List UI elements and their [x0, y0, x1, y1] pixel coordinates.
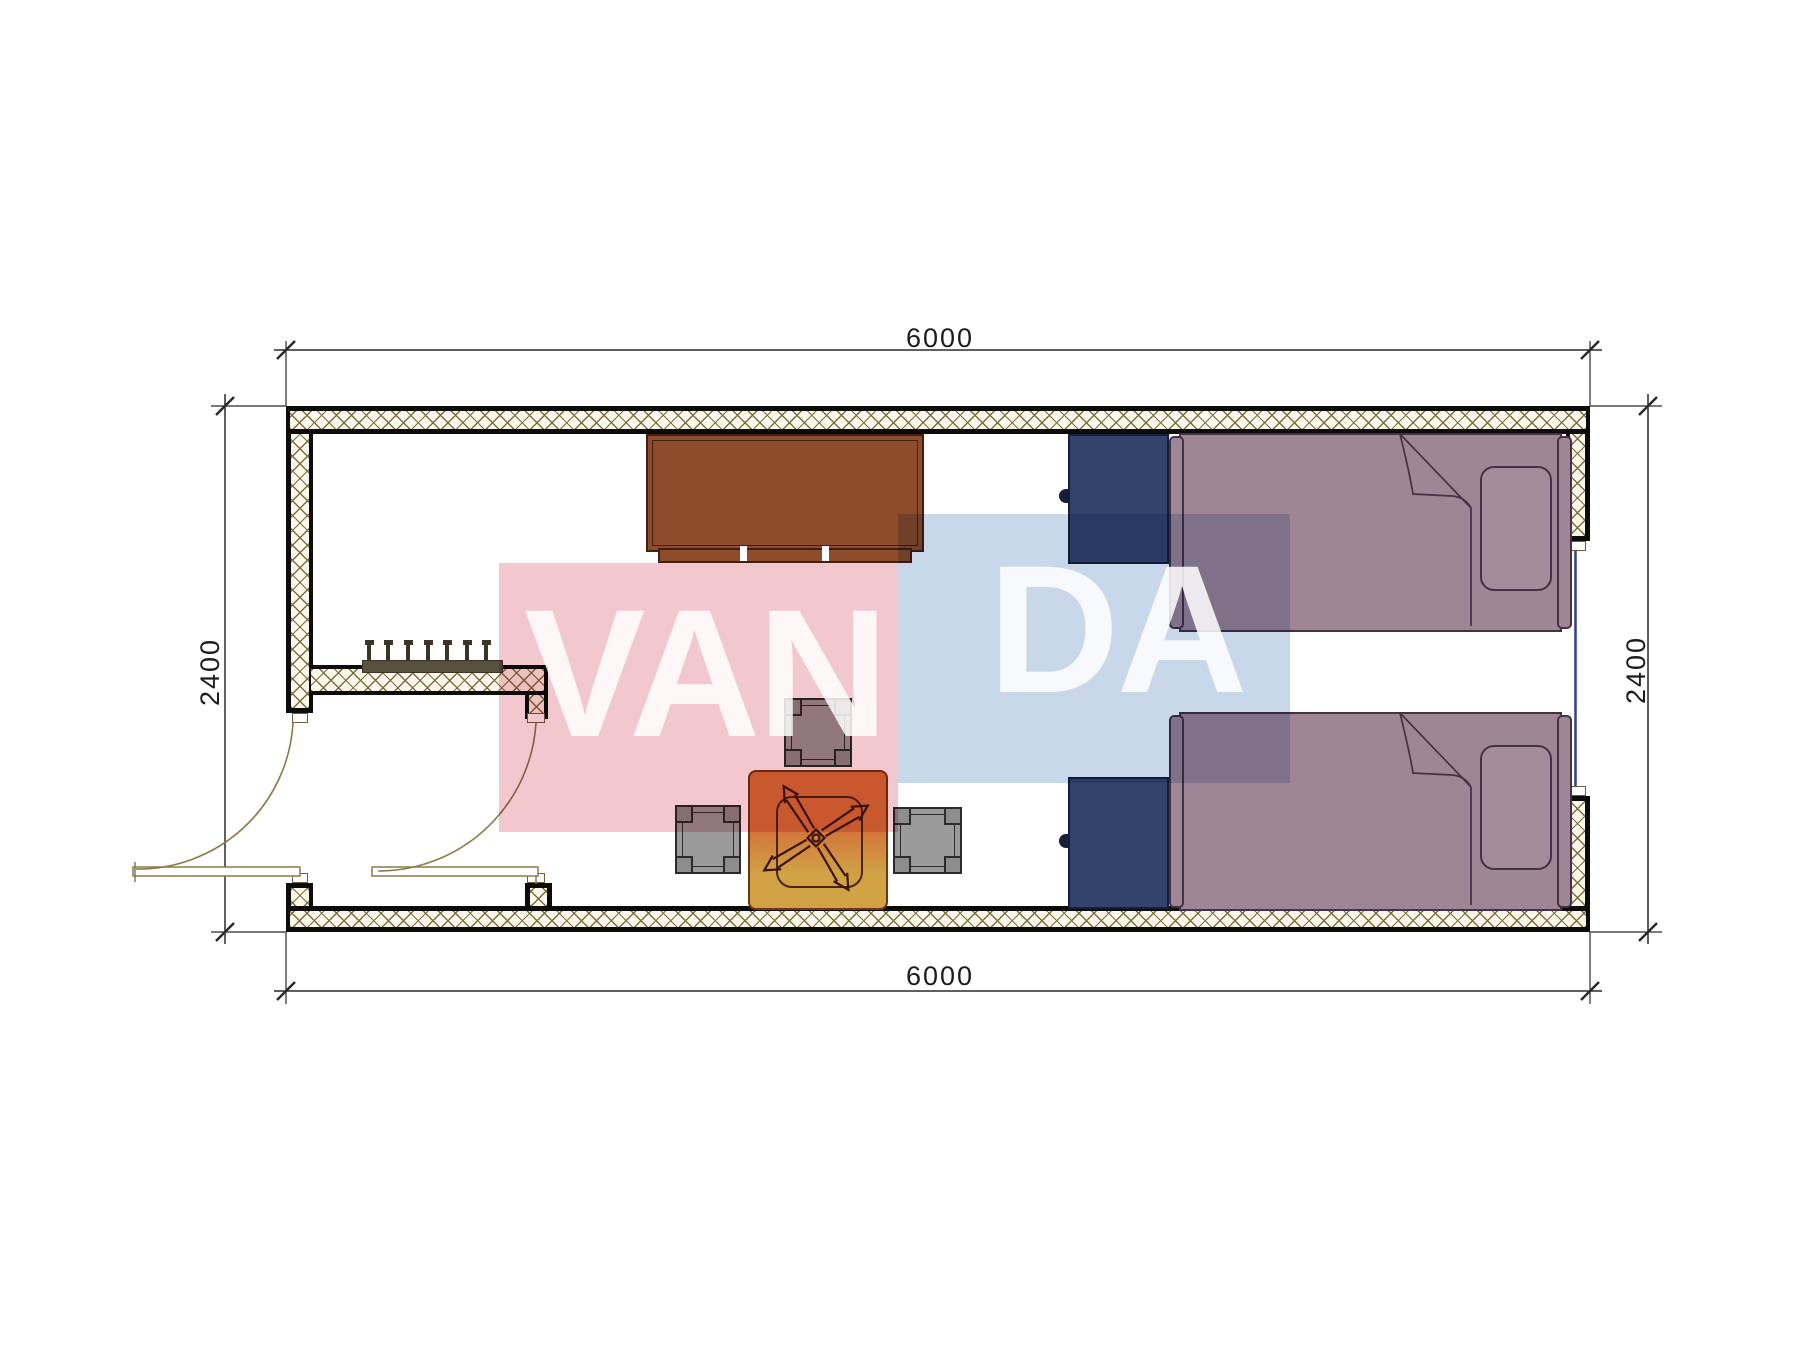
- watermark-text-left: VAN: [524, 582, 886, 764]
- watermark-text-right: DA: [988, 538, 1245, 720]
- blanket-fold-top: [1400, 434, 1471, 626]
- floor-plan-canvas: 6000 6000 2400 2400: [0, 0, 1800, 1350]
- blanket-fold-bottom: [1400, 713, 1471, 905]
